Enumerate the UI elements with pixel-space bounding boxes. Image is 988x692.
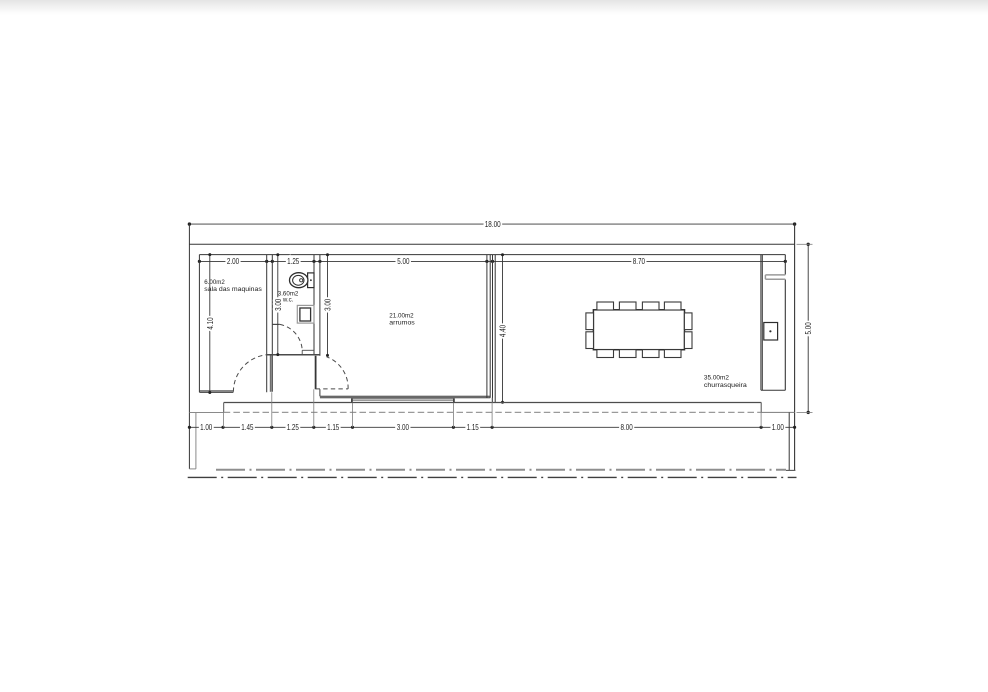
svg-text:3.00: 3.00: [324, 298, 333, 311]
svg-text:2.00: 2.00: [227, 257, 240, 266]
svg-text:1.00: 1.00: [772, 423, 785, 432]
svg-text:1.45: 1.45: [241, 423, 254, 432]
svg-text:1.15: 1.15: [467, 423, 480, 432]
svg-text:1.00: 1.00: [200, 423, 213, 432]
svg-text:4.10: 4.10: [206, 317, 215, 330]
svg-text:arrumos: arrumos: [389, 319, 415, 326]
svg-text:1.25: 1.25: [287, 423, 300, 432]
svg-text:8.00: 8.00: [621, 423, 634, 432]
svg-text:3.00: 3.00: [397, 423, 410, 432]
svg-text:3.00: 3.00: [274, 298, 283, 311]
svg-text:5.00: 5.00: [397, 257, 410, 266]
svg-text:sala das maquinas: sala das maquinas: [204, 286, 262, 293]
svg-text:churrasqueira: churrasqueira: [704, 382, 747, 389]
svg-text:4.40: 4.40: [499, 325, 508, 338]
svg-text:1.15: 1.15: [327, 423, 340, 432]
svg-text:5.00: 5.00: [804, 322, 813, 335]
svg-text:6.00m2: 6.00m2: [204, 279, 225, 286]
svg-text:35.00m2: 35.00m2: [704, 375, 729, 382]
svg-text:w.c.: w.c.: [282, 296, 293, 303]
svg-text:8.70: 8.70: [633, 257, 646, 266]
svg-text:18.00: 18.00: [485, 220, 501, 229]
svg-text:1.25: 1.25: [287, 257, 300, 266]
